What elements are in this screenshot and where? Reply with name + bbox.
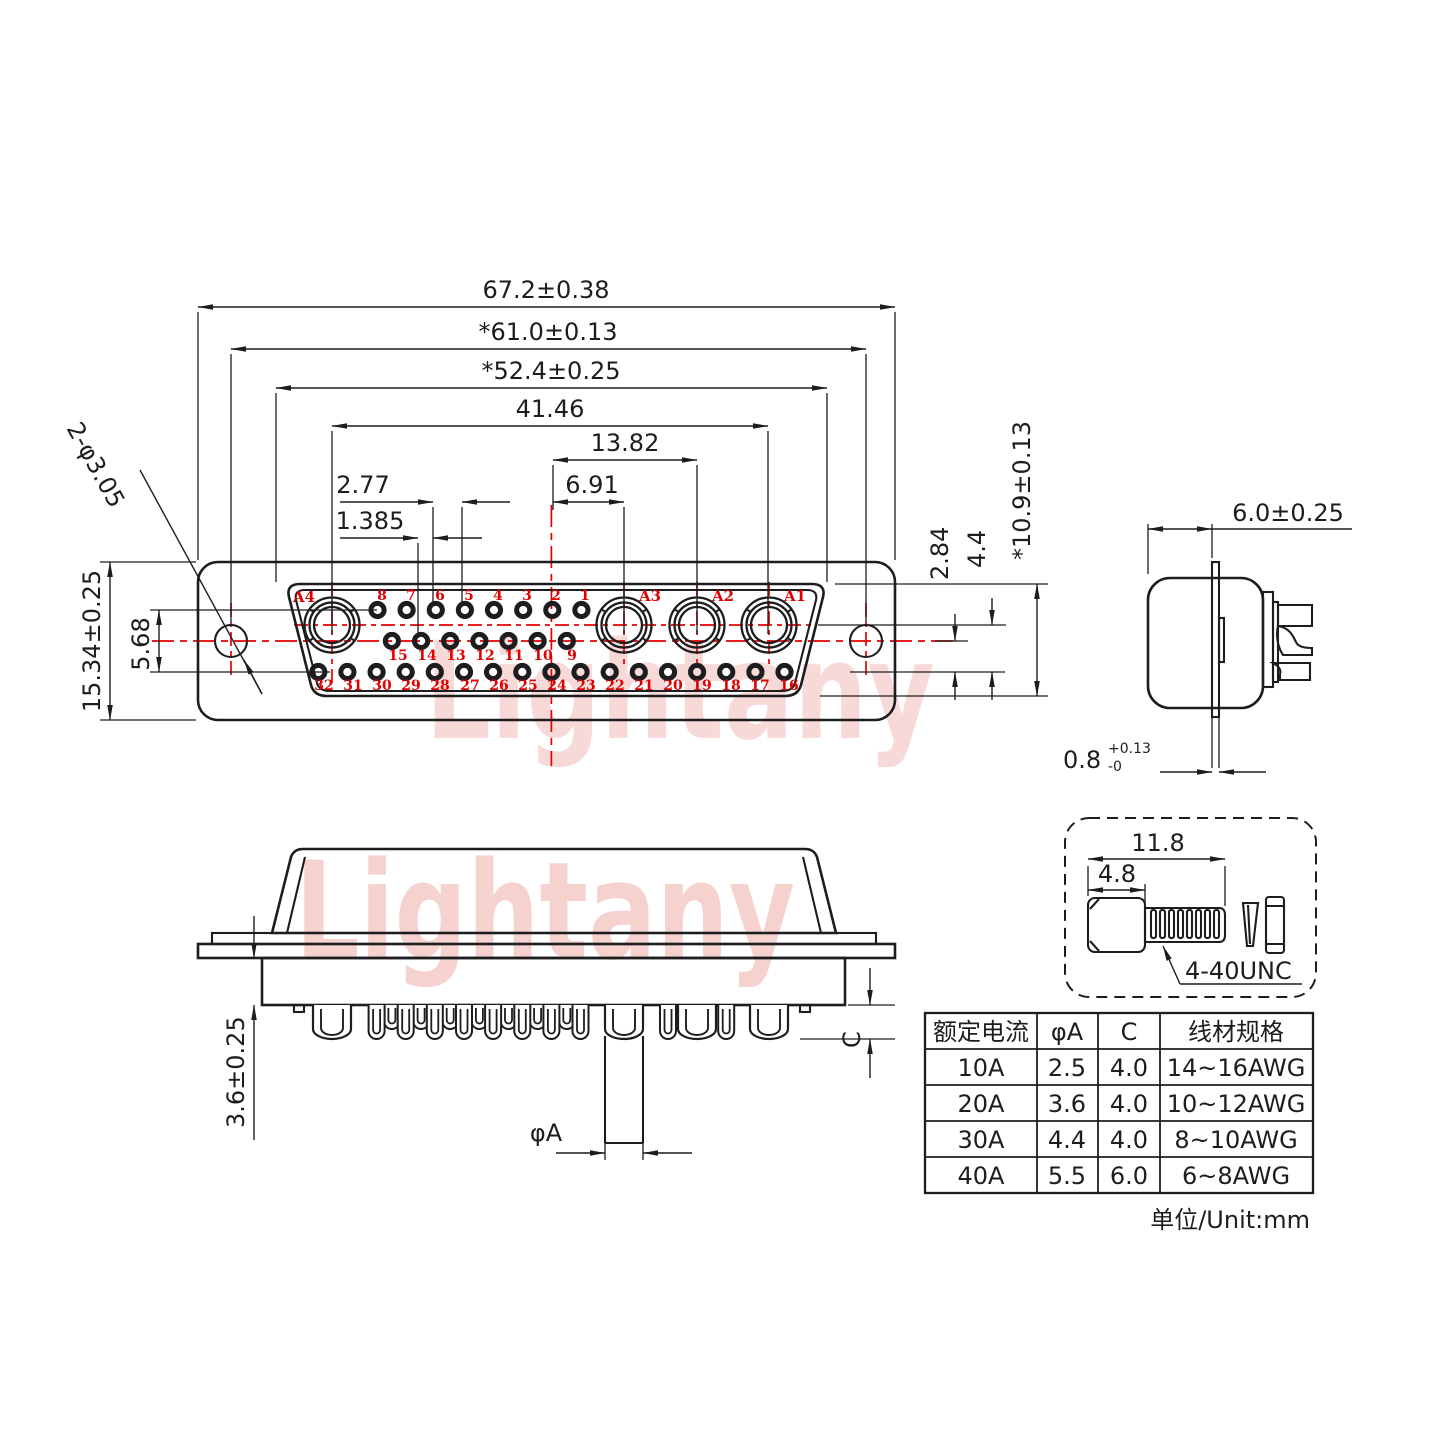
table-cell: 10~12AWG xyxy=(1167,1090,1306,1118)
dim-standoff: 3.6±0.25 xyxy=(222,1016,250,1128)
pin-label: 23 xyxy=(576,678,595,694)
dim-a-pin-span: 41.46 xyxy=(516,395,585,423)
table-header-wire: 线材规格 xyxy=(1188,1018,1284,1046)
pin-label: 31 xyxy=(343,678,362,694)
pin-label: 11 xyxy=(504,648,523,664)
table-cell: 4.0 xyxy=(1110,1054,1148,1082)
table-cell: 4.0 xyxy=(1110,1126,1148,1154)
dim-hole-span: *61.0±0.13 xyxy=(479,318,618,346)
pin-label: 24 xyxy=(547,678,567,694)
dim-flange-height: 15.34±0.25 xyxy=(78,570,106,712)
screw-head xyxy=(1088,898,1145,952)
table-cell: 8~10AWG xyxy=(1174,1126,1297,1154)
table-cell: 2.5 xyxy=(1048,1054,1086,1082)
connector-technical-drawing: Lightany xyxy=(0,0,1440,1440)
pin-label: 22 xyxy=(605,678,624,694)
pin-label: 30 xyxy=(372,678,392,694)
socket-label: A1 xyxy=(783,587,806,605)
side-view: 6.0±0.25 0.8 +0.13 -0 xyxy=(1063,499,1352,775)
dim-flange-thickness: 0.8 xyxy=(1063,746,1101,774)
table-cell: 10A xyxy=(958,1054,1006,1082)
table-header-diaA: φA xyxy=(1051,1018,1084,1046)
body-notch-left xyxy=(294,1005,304,1012)
table-cell: 14~16AWG xyxy=(1167,1054,1306,1082)
pin-label: 29 xyxy=(401,678,420,694)
watermark-bottom: Lightany xyxy=(295,833,795,990)
socket-label: A2 xyxy=(711,587,734,605)
pin-label: 1 xyxy=(580,588,590,604)
table-cell: 3.6 xyxy=(1048,1090,1086,1118)
table-header-current: 额定电流 xyxy=(933,1018,1029,1046)
pin-label: 6 xyxy=(435,588,445,604)
screw-threads xyxy=(1151,910,1219,938)
dim-pin-pitch: 2.77 xyxy=(336,471,389,499)
pin-label: 16 xyxy=(779,678,798,694)
dim-row-pitch: 2.84 xyxy=(926,527,954,580)
table-header-C: C xyxy=(1121,1018,1138,1046)
dim-half-pitch: 1.385 xyxy=(336,507,405,535)
flange-tab xyxy=(1219,618,1224,662)
drawing-page: Lightany xyxy=(0,0,1440,1440)
thread-spec-label: 4-40UNC xyxy=(1185,957,1292,985)
pin-label: 3 xyxy=(522,588,532,604)
power-pin-barrel xyxy=(605,1036,643,1143)
pin-label: 9 xyxy=(567,648,577,664)
front-view: Lightany xyxy=(61,276,1048,770)
pin-label: 2 xyxy=(551,588,561,604)
dim-shroud-height: *10.9±0.13 xyxy=(1008,421,1036,560)
socket-label: A3 xyxy=(638,587,661,605)
table-cell: 6.0 xyxy=(1110,1162,1148,1190)
dim-row-span: 5.68 xyxy=(127,617,155,670)
table-cell: 4.0 xyxy=(1110,1090,1148,1118)
upper-wire-hook xyxy=(1277,626,1312,655)
dim-flange-tol-minus: -0 xyxy=(1108,759,1122,775)
dim-socket-row-depth: 4.4 xyxy=(963,530,991,568)
pin-label: 15 xyxy=(388,648,407,664)
spec-table: 额定电流 φA C 线材规格 10A 2.5 4.0 14~16AWG 20A … xyxy=(925,1013,1313,1234)
dim-screw-head: 4.8 xyxy=(1098,860,1136,888)
shell-body-outline xyxy=(1148,578,1263,708)
solder-cups xyxy=(313,1005,788,1039)
dim-overall-width: 67.2±0.38 xyxy=(483,276,610,304)
flange-edge xyxy=(1212,562,1219,717)
pin-label: 32 xyxy=(314,678,333,694)
dim-half-pair: 6.91 xyxy=(565,471,618,499)
label-cup-depth: C xyxy=(838,1031,866,1048)
pin-label: 12 xyxy=(475,648,494,664)
pin-label: 17 xyxy=(750,678,769,694)
pin-label: 20 xyxy=(663,678,683,694)
pin-label: 19 xyxy=(692,678,711,694)
label-pin-diameter: φA xyxy=(530,1119,563,1147)
bottom-view: Lightany 3.6±0.25 C xyxy=(198,833,895,1160)
table-cell: 30A xyxy=(958,1126,1006,1154)
rear-insert xyxy=(1263,592,1273,687)
dim-screw-length: 11.8 xyxy=(1131,829,1184,857)
pin-label: 5 xyxy=(464,588,474,604)
screw-detail: 11.8 4.8 4-40UNC xyxy=(1065,818,1316,997)
table-cell: 6~8AWG xyxy=(1182,1162,1290,1190)
pin-label: 21 xyxy=(634,678,653,694)
pin-label: 10 xyxy=(533,648,553,664)
table-cell: 4.4 xyxy=(1048,1126,1086,1154)
upper-solder-tab xyxy=(1278,605,1312,626)
pin-label: 14 xyxy=(417,648,437,664)
dim-shell-depth: 6.0±0.25 xyxy=(1232,499,1344,527)
dim-pair-span: 13.82 xyxy=(591,429,660,457)
dim-flange-tol-plus: +0.13 xyxy=(1108,741,1151,757)
pin-label: 28 xyxy=(430,678,449,694)
table-cell: 5.5 xyxy=(1048,1162,1086,1190)
table-cell: 20A xyxy=(958,1090,1006,1118)
body-notch-right xyxy=(800,1005,810,1012)
dim-mount-hole: 2-φ3.05 xyxy=(61,417,131,512)
pin-label: 13 xyxy=(446,648,465,664)
unit-note: 单位/Unit:mm xyxy=(1150,1206,1310,1234)
pin-label: 26 xyxy=(489,678,508,694)
pin-label: 4 xyxy=(493,588,503,604)
dim-shroud-width: *52.4±0.25 xyxy=(482,357,621,385)
pin-label: 27 xyxy=(460,678,479,694)
pin-label: 8 xyxy=(377,588,387,604)
pin-label: 7 xyxy=(406,588,416,604)
pin-label: 18 xyxy=(721,678,740,694)
pin-label: 25 xyxy=(518,678,537,694)
table-cell: 40A xyxy=(958,1162,1006,1190)
socket-label: A4 xyxy=(292,588,315,606)
